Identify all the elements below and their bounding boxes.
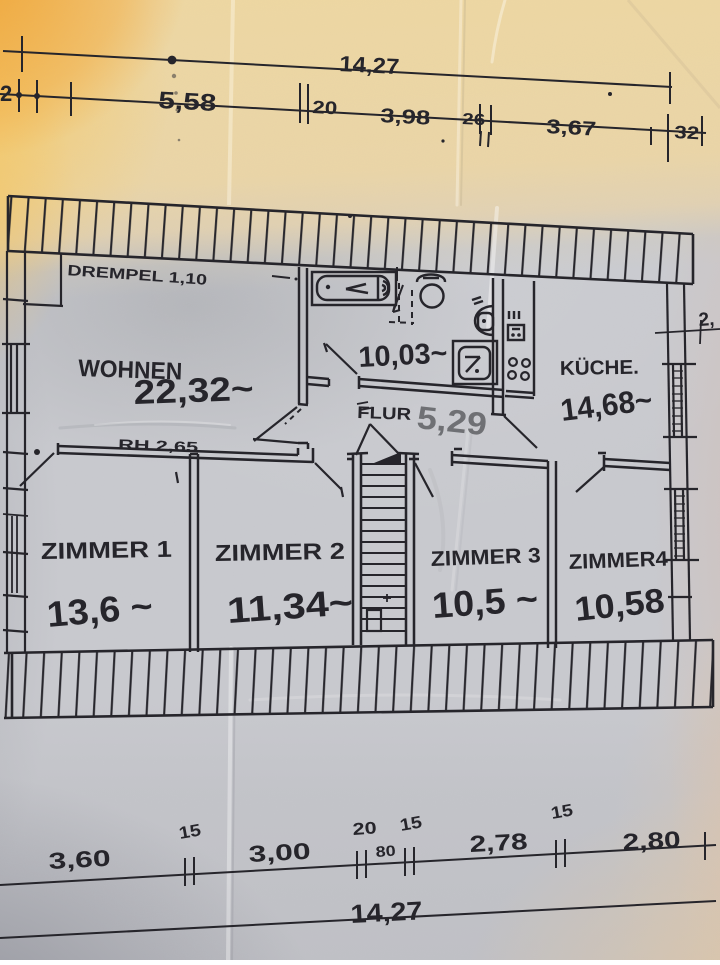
svg-text:15: 15 [549, 800, 574, 823]
svg-text:2: 2 [0, 81, 12, 106]
svg-text:2,: 2, [698, 309, 715, 331]
svg-text:15: 15 [177, 820, 202, 843]
svg-text:20: 20 [312, 97, 338, 118]
svg-text:FLUR: FLUR [357, 403, 412, 424]
svg-text:3,98: 3,98 [380, 105, 431, 130]
svg-text:RH 2,65: RH 2,65 [118, 436, 199, 455]
svg-text:10,03~: 10,03~ [358, 337, 449, 374]
svg-text:ZIMMER 3: ZIMMER 3 [430, 544, 541, 571]
svg-text:2,80: 2,80 [622, 826, 681, 855]
svg-text:2,78: 2,78 [469, 828, 529, 857]
svg-text:14,27: 14,27 [350, 895, 423, 929]
svg-text:26: 26 [462, 111, 486, 129]
svg-text:5,58: 5,58 [158, 87, 217, 117]
svg-text:3,60: 3,60 [48, 845, 111, 874]
svg-text:32: 32 [674, 122, 700, 143]
svg-text:KÜCHE.: KÜCHE. [560, 356, 639, 380]
svg-text:22,32~: 22,32~ [133, 370, 254, 412]
svg-text:10,5 ~: 10,5 ~ [431, 578, 540, 626]
svg-text:3,00: 3,00 [248, 838, 311, 867]
svg-text:3,67: 3,67 [546, 116, 597, 141]
svg-text:20: 20 [352, 818, 377, 839]
svg-text:14,27: 14,27 [339, 51, 400, 79]
svg-text:ZIMMER 2: ZIMMER 2 [215, 538, 345, 566]
svg-text:5,29: 5,29 [415, 399, 488, 442]
svg-text:11,34~: 11,34~ [226, 581, 355, 631]
svg-text:ZIMMER4: ZIMMER4 [568, 548, 668, 574]
svg-text:ZIMMER 1: ZIMMER 1 [41, 536, 173, 564]
svg-text:80: 80 [375, 843, 396, 861]
svg-text:15: 15 [398, 812, 423, 835]
